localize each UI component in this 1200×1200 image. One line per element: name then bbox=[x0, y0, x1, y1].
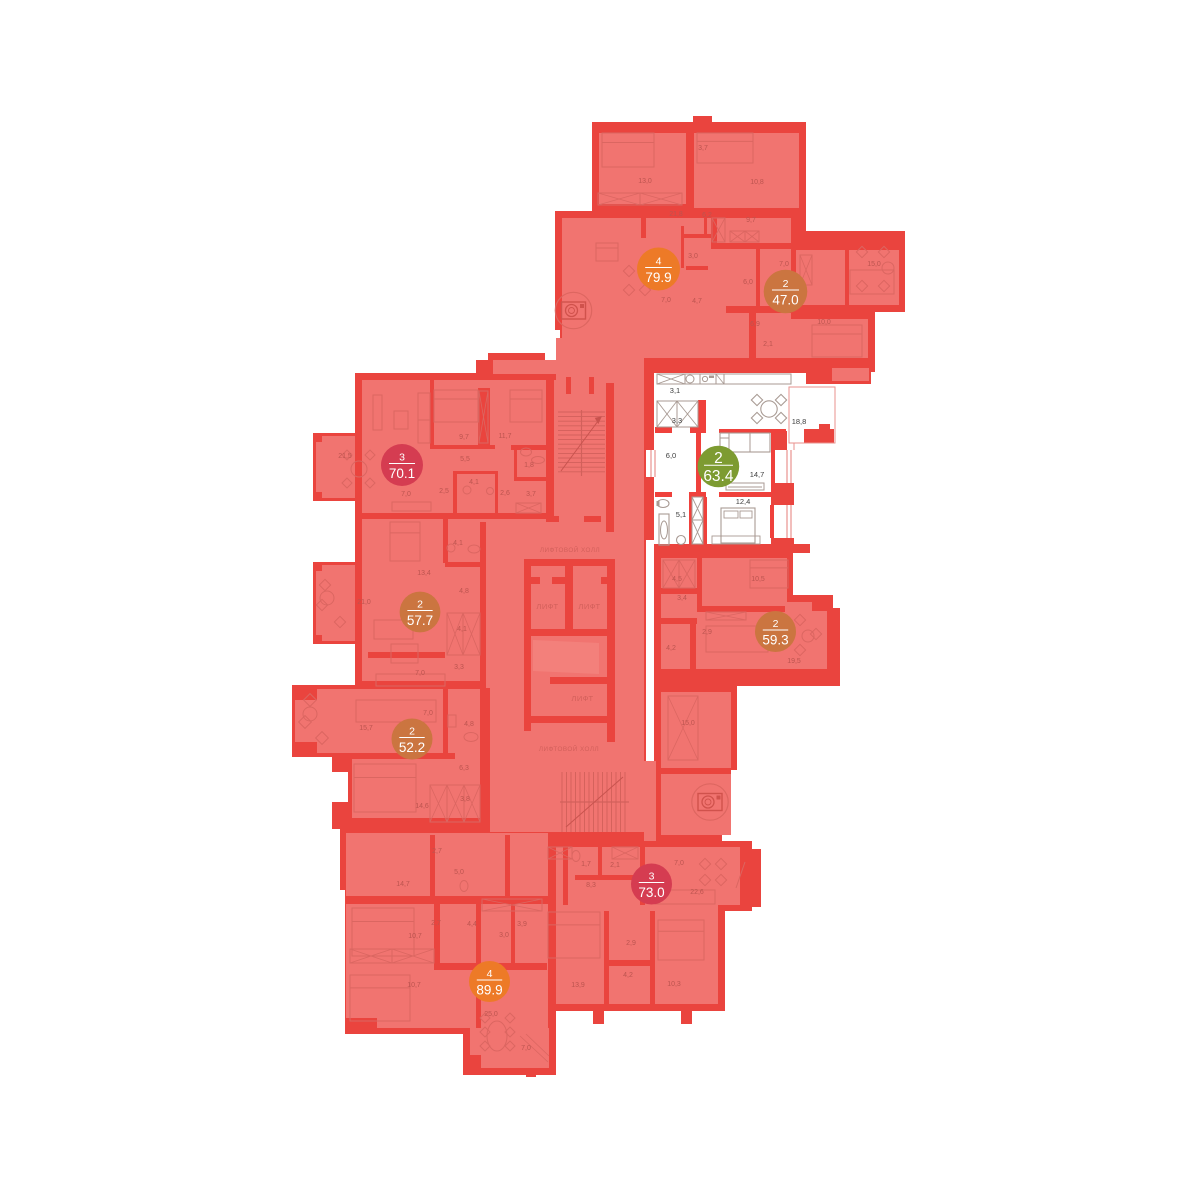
svg-text:57.7: 57.7 bbox=[407, 613, 433, 628]
svg-text:4,2: 4,2 bbox=[623, 972, 633, 979]
svg-text:7,0: 7,0 bbox=[401, 491, 411, 498]
svg-text:79.9: 79.9 bbox=[645, 270, 671, 285]
svg-text:2,7: 2,7 bbox=[431, 920, 441, 927]
svg-text:ЛИФТ: ЛИФТ bbox=[578, 602, 600, 611]
svg-text:2,1: 2,1 bbox=[610, 862, 620, 869]
svg-text:14,7: 14,7 bbox=[750, 470, 765, 479]
svg-text:10,7: 10,7 bbox=[408, 933, 422, 940]
svg-text:3,9: 3,9 bbox=[517, 921, 527, 928]
svg-text:ЛИФТ: ЛИФТ bbox=[536, 602, 558, 611]
svg-text:2,6: 2,6 bbox=[500, 490, 510, 497]
svg-text:4,2: 4,2 bbox=[666, 645, 676, 652]
svg-text:22,6: 22,6 bbox=[690, 889, 704, 896]
svg-text:2,5: 2,5 bbox=[439, 488, 449, 495]
svg-text:14,7: 14,7 bbox=[396, 881, 410, 888]
svg-text:10,7: 10,7 bbox=[407, 982, 421, 989]
svg-text:5,0: 5,0 bbox=[454, 869, 464, 876]
svg-text:2,7: 2,7 bbox=[432, 848, 442, 855]
svg-text:4,1: 4,1 bbox=[453, 540, 463, 547]
svg-text:19,5: 19,5 bbox=[787, 658, 801, 665]
svg-text:1,7: 1,7 bbox=[581, 861, 591, 868]
svg-text:4,7: 4,7 bbox=[692, 298, 702, 305]
svg-text:7,0: 7,0 bbox=[661, 297, 671, 304]
svg-text:7,0: 7,0 bbox=[779, 261, 789, 268]
svg-text:2,9: 2,9 bbox=[626, 940, 636, 947]
svg-text:7,0: 7,0 bbox=[521, 1045, 531, 1052]
svg-text:2,1: 2,1 bbox=[763, 341, 773, 348]
svg-text:7,0: 7,0 bbox=[415, 670, 425, 677]
svg-text:3,3: 3,3 bbox=[672, 416, 682, 425]
svg-text:15,7: 15,7 bbox=[359, 725, 373, 732]
svg-text:18,8: 18,8 bbox=[792, 417, 807, 426]
svg-text:2,9: 2,9 bbox=[702, 629, 712, 636]
svg-text:15,0: 15,0 bbox=[681, 720, 695, 727]
svg-text:3,0: 3,0 bbox=[688, 253, 698, 260]
svg-text:3,0: 3,0 bbox=[499, 932, 509, 939]
svg-text:2: 2 bbox=[417, 599, 423, 611]
svg-text:11,7: 11,7 bbox=[498, 433, 511, 440]
svg-text:21,0: 21,0 bbox=[357, 599, 371, 606]
svg-text:52.2: 52.2 bbox=[399, 740, 425, 755]
svg-text:15,0: 15,0 bbox=[867, 261, 881, 268]
svg-text:2: 2 bbox=[409, 726, 415, 738]
svg-text:8,3: 8,3 bbox=[586, 882, 596, 889]
svg-text:6,2: 6,2 bbox=[702, 212, 712, 219]
svg-text:4,1: 4,1 bbox=[469, 479, 479, 486]
svg-text:5,5: 5,5 bbox=[460, 456, 470, 463]
svg-text:6,3: 6,3 bbox=[459, 765, 469, 772]
svg-text:7,0: 7,0 bbox=[423, 710, 433, 717]
svg-text:6,0: 6,0 bbox=[666, 451, 676, 460]
svg-text:3: 3 bbox=[399, 452, 405, 464]
svg-text:ЛИФТОВОЙ ХОЛЛ: ЛИФТОВОЙ ХОЛЛ bbox=[539, 744, 599, 753]
svg-text:ЛИФТ: ЛИФТ bbox=[571, 694, 593, 703]
svg-text:2: 2 bbox=[714, 450, 723, 467]
svg-text:14,6: 14,6 bbox=[415, 803, 429, 810]
svg-text:59.3: 59.3 bbox=[762, 633, 788, 648]
svg-text:7,0: 7,0 bbox=[674, 860, 684, 867]
svg-text:70.1: 70.1 bbox=[389, 466, 415, 481]
svg-text:3,3: 3,3 bbox=[454, 664, 464, 671]
svg-text:4: 4 bbox=[487, 968, 493, 980]
svg-text:9,7: 9,7 bbox=[746, 217, 756, 224]
svg-text:63.4: 63.4 bbox=[703, 468, 734, 485]
svg-text:6,0: 6,0 bbox=[743, 279, 753, 286]
svg-text:3,4: 3,4 bbox=[677, 595, 687, 602]
svg-text:3,7: 3,7 bbox=[698, 145, 708, 152]
svg-text:47.0: 47.0 bbox=[772, 293, 798, 308]
svg-text:4,1: 4,1 bbox=[457, 626, 467, 633]
svg-text:1,8: 1,8 bbox=[524, 462, 534, 469]
svg-text:73.0: 73.0 bbox=[638, 885, 664, 900]
svg-text:5,1: 5,1 bbox=[676, 510, 686, 519]
svg-text:4: 4 bbox=[656, 256, 662, 268]
svg-text:10,0: 10,0 bbox=[817, 319, 831, 326]
svg-text:89.9: 89.9 bbox=[476, 983, 502, 998]
svg-text:2: 2 bbox=[783, 278, 789, 290]
svg-text:13,4: 13,4 bbox=[417, 570, 431, 577]
svg-text:2: 2 bbox=[773, 618, 779, 630]
svg-text:3: 3 bbox=[649, 871, 655, 883]
svg-text:3,1: 3,1 bbox=[670, 386, 680, 395]
svg-text:ЛИФТОВОЙ ХОЛЛ: ЛИФТОВОЙ ХОЛЛ bbox=[540, 545, 600, 554]
svg-text:13,9: 13,9 bbox=[571, 982, 585, 989]
svg-text:4,8: 4,8 bbox=[459, 588, 469, 595]
svg-text:3,8: 3,8 bbox=[460, 796, 470, 803]
svg-text:3,7: 3,7 bbox=[526, 491, 536, 498]
svg-text:21,5: 21,5 bbox=[338, 453, 352, 460]
svg-text:9,7: 9,7 bbox=[459, 434, 469, 441]
svg-text:12,4: 12,4 bbox=[736, 497, 751, 506]
svg-text:6,9: 6,9 bbox=[750, 321, 760, 328]
svg-text:25,0: 25,0 bbox=[484, 1011, 498, 1018]
svg-text:10,5: 10,5 bbox=[751, 576, 765, 583]
svg-text:4,5: 4,5 bbox=[672, 576, 682, 583]
svg-text:10,8: 10,8 bbox=[750, 179, 764, 186]
svg-text:4,4: 4,4 bbox=[467, 921, 477, 928]
svg-text:4,8: 4,8 bbox=[464, 721, 474, 728]
svg-text:21,8: 21,8 bbox=[669, 211, 683, 218]
svg-text:13,0: 13,0 bbox=[638, 178, 652, 185]
svg-text:10,3: 10,3 bbox=[667, 981, 681, 988]
